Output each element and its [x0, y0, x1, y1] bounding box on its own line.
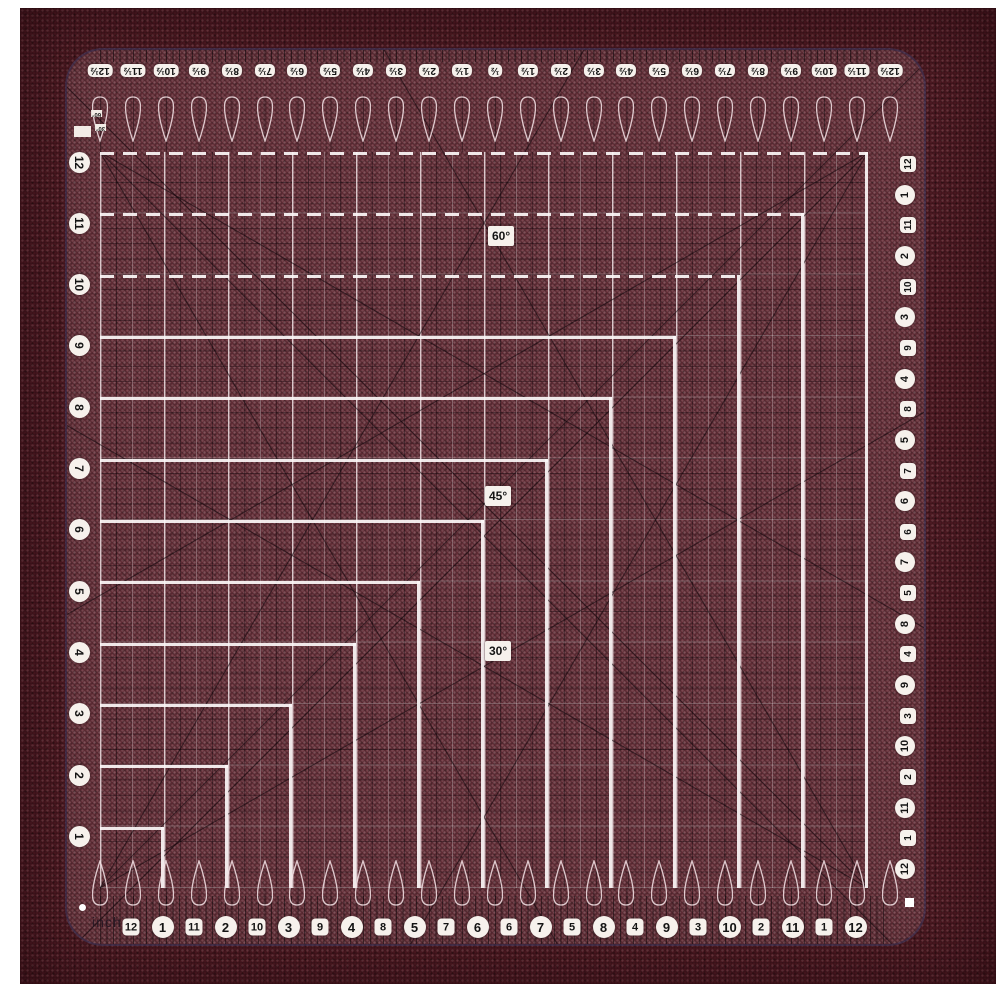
- top-scale-label: 3½: [584, 64, 604, 77]
- right-scale-label: 11: [895, 798, 915, 818]
- corner-dot-mark: [79, 904, 86, 911]
- bottom-scale-label: 9: [312, 919, 329, 936]
- teardrop-icon: [125, 860, 141, 906]
- left-scale-label: 2: [69, 765, 90, 786]
- square-line-horizontal: [100, 397, 612, 400]
- square-line-horizontal: [100, 152, 868, 155]
- top-scale-label: 1½: [518, 64, 538, 77]
- left-scale-label: 1: [69, 826, 90, 847]
- teardrop-icon: [816, 96, 832, 142]
- bottom-scale-label: 2: [215, 916, 237, 938]
- right-scale-label: 8: [895, 614, 915, 634]
- teardrop-icon: [289, 96, 305, 142]
- bottom-scale-label: 3: [278, 916, 300, 938]
- bottom-scale-label: 11: [186, 919, 203, 936]
- bottom-scale-label: 10: [249, 919, 266, 936]
- bottom-scale-label: 6: [501, 919, 518, 936]
- right-scale-label: 3: [900, 708, 916, 724]
- top-scale-label: 4½: [616, 64, 636, 77]
- teardrop-icon: [158, 96, 174, 142]
- square-line-vertical: [481, 520, 484, 888]
- right-scale-label: 6: [900, 524, 916, 540]
- corner-square-mark: [905, 898, 914, 907]
- teardrop-icon: [849, 96, 865, 142]
- top-scale-label: 6½: [287, 64, 307, 77]
- right-scale-label: 2: [900, 769, 916, 785]
- bottom-scale-label: 7: [438, 919, 455, 936]
- top-scale-label: 11½: [120, 64, 145, 77]
- left-scale-label: 4: [69, 642, 90, 663]
- teardrop-icon: [553, 96, 569, 142]
- bottom-scale-label: 5: [564, 919, 581, 936]
- square-line-horizontal: [100, 765, 228, 768]
- teardrop-icon: [750, 96, 766, 142]
- teardrop-icon: [355, 96, 371, 142]
- square-line-horizontal: [100, 643, 356, 646]
- bottom-scale-label: 8: [593, 916, 615, 938]
- square-line-horizontal: [100, 704, 292, 707]
- teardrop-icon: [783, 860, 799, 906]
- bottom-scale-label: 6: [467, 916, 489, 938]
- teardrop-icon: [355, 860, 371, 906]
- corner-angle-label: 30°: [95, 124, 106, 131]
- top-scale-label: 2½: [551, 64, 571, 77]
- teardrop-icon: [388, 860, 404, 906]
- top-scale-label: 9½: [189, 64, 209, 77]
- teardrop-icon: [816, 860, 832, 906]
- bottom-scale-label: 9: [656, 916, 678, 938]
- left-scale-label: 5: [69, 581, 90, 602]
- teardrop-icon: [651, 96, 667, 142]
- bottom-scale-label: 12: [123, 919, 140, 936]
- teardrop-icon: [322, 860, 338, 906]
- teardrop-icon: [783, 96, 799, 142]
- top-scale-label: 5½: [649, 64, 669, 77]
- inch-unit-label: inch: [92, 914, 122, 930]
- top-scale-label: 8½: [748, 64, 768, 77]
- top-scale-label: 12½: [87, 64, 112, 77]
- top-scale-label: 10½: [811, 64, 836, 77]
- top-scale-label: 11½: [844, 64, 869, 77]
- top-scale-label: 2½: [419, 64, 439, 77]
- teardrop-icon: [684, 96, 700, 142]
- square-line-vertical: [673, 336, 676, 888]
- right-scale-label: 4: [895, 369, 915, 389]
- teardrop-icon: [454, 860, 470, 906]
- angle-label: 60°: [488, 226, 514, 246]
- top-scale-label: 6½: [682, 64, 702, 77]
- bottom-scale-label: 10: [719, 916, 741, 938]
- bottom-scale-label: 1: [152, 916, 174, 938]
- right-scale-label: 5: [895, 430, 915, 450]
- square-line-vertical: [865, 152, 868, 888]
- teardrop-icon: [454, 96, 470, 142]
- square-line-vertical: [609, 397, 612, 888]
- bottom-scale-label: 1: [816, 919, 833, 936]
- square-line-horizontal: [100, 520, 484, 523]
- bottom-scale-label: 4: [341, 916, 363, 938]
- maroon-fabric-background: 12½11½10½9½8½7½6½5½4½3½2½1½½1½2½3½4½5½6½…: [20, 8, 996, 984]
- right-scale-label: 9: [895, 675, 915, 695]
- teardrop-icon: [487, 96, 503, 142]
- teardrop-icon: [158, 860, 174, 906]
- bottom-scale-label: 11: [782, 916, 804, 938]
- right-scale-label: 8: [900, 401, 916, 417]
- right-scale-label: 2: [895, 246, 915, 266]
- teardrop-icon: [487, 860, 503, 906]
- right-scale-label: 5: [900, 585, 916, 601]
- bottom-scale-label: 5: [404, 916, 426, 938]
- teardrop-icon: [717, 860, 733, 906]
- top-scale-label: ½: [488, 64, 502, 77]
- bottom-scale-label: 3: [690, 919, 707, 936]
- top-scale-label: 9½: [781, 64, 801, 77]
- square-line-horizontal: [100, 581, 420, 584]
- angle-label: 45°: [485, 486, 511, 506]
- left-scale-label: 11: [69, 213, 90, 234]
- top-scale-label: 10½: [153, 64, 178, 77]
- top-scale-label: 7½: [715, 64, 735, 77]
- teardrop-icon: [586, 96, 602, 142]
- photo-stage: 12½11½10½9½8½7½6½5½4½3½2½1½½1½2½3½4½5½6½…: [0, 0, 1000, 1000]
- square-line-horizontal: [100, 213, 804, 216]
- teardrop-icon: [717, 96, 733, 142]
- teardrop-icon: [224, 860, 240, 906]
- square-line-vertical: [801, 213, 804, 888]
- teardrop-icon: [289, 860, 305, 906]
- angle-label: 30°: [485, 641, 511, 661]
- teardrop-icon: [421, 96, 437, 142]
- top-scale-label: 7½: [255, 64, 275, 77]
- top-scale-label: 3½: [386, 64, 406, 77]
- right-scale-label: 10: [900, 279, 916, 295]
- right-scale-label: 4: [900, 646, 916, 662]
- right-scale-label: 12: [900, 156, 916, 172]
- right-scale-label: 6: [895, 491, 915, 511]
- teardrop-icon: [191, 860, 207, 906]
- bottom-scale-label: 2: [753, 919, 770, 936]
- diagonal-line: [218, 152, 868, 944]
- teardrop-icon: [421, 860, 437, 906]
- teardrop-icon: [92, 96, 108, 142]
- left-scale-label: 12: [69, 152, 90, 173]
- teardrop-icon: [618, 860, 634, 906]
- top-scale-label: 5½: [320, 64, 340, 77]
- teardrop-icon: [651, 860, 667, 906]
- bottom-scale-label: 4: [627, 919, 644, 936]
- top-scale-label: 12½: [877, 64, 902, 77]
- teardrop-icon: [750, 860, 766, 906]
- ruler: 12½11½10½9½8½7½6½5½4½3½2½1½½1½2½3½4½5½6½…: [65, 48, 926, 946]
- diagonal-line: [67, 152, 868, 944]
- corner-angle-label: 60°: [91, 110, 102, 117]
- teardrop-icon: [257, 860, 273, 906]
- teardrop-icon: [191, 96, 207, 142]
- square-line-vertical: [417, 581, 420, 888]
- teardrop-icon: [586, 860, 602, 906]
- teardrop-icon: [849, 860, 865, 906]
- left-scale-label: 10: [69, 274, 90, 295]
- right-scale-label: 11: [900, 217, 916, 233]
- right-scale-label: 9: [900, 340, 916, 356]
- diagonal-line: [100, 152, 750, 944]
- square-line-vertical: [545, 459, 548, 888]
- square-line-horizontal: [100, 336, 676, 339]
- top-scale-label: 8½: [222, 64, 242, 77]
- square-line-vertical: [353, 643, 356, 888]
- teardrop-icon: [553, 860, 569, 906]
- blank-corner-sticker: [74, 126, 91, 137]
- left-scale-label: 8: [69, 397, 90, 418]
- teardrop-icon: [520, 860, 536, 906]
- bottom-scale-label: 8: [375, 919, 392, 936]
- teardrop-icon: [322, 96, 338, 142]
- diagonal-line: [100, 50, 750, 888]
- teardrop-icon: [125, 96, 141, 142]
- right-scale-label: 1: [895, 185, 915, 205]
- teardrop-icon: [618, 96, 634, 142]
- bottom-scale-label: 7: [530, 916, 552, 938]
- square-line-horizontal: [100, 459, 548, 462]
- teardrop-icon: [224, 96, 240, 142]
- right-scale-label: 7: [900, 463, 916, 479]
- square-line-vertical: [737, 275, 740, 888]
- left-scale-label: 7: [69, 458, 90, 479]
- teardrop-icon: [388, 96, 404, 142]
- square-line-horizontal: [100, 827, 164, 830]
- top-scale-label: 4½: [353, 64, 373, 77]
- right-scale-label: 12: [895, 859, 915, 879]
- bottom-scale-label: 12: [845, 916, 867, 938]
- right-scale-label: 1: [900, 830, 916, 846]
- top-scale-label: 1½: [452, 64, 472, 77]
- teardrop-icon: [882, 96, 898, 142]
- teardrop-icon: [684, 860, 700, 906]
- teardrop-icon: [520, 96, 536, 142]
- teardrop-icon: [257, 96, 273, 142]
- diagonal-line: [67, 50, 868, 888]
- square-line-horizontal: [100, 275, 740, 278]
- teardrop-icon: [92, 860, 108, 906]
- diagonal-line: [218, 50, 868, 888]
